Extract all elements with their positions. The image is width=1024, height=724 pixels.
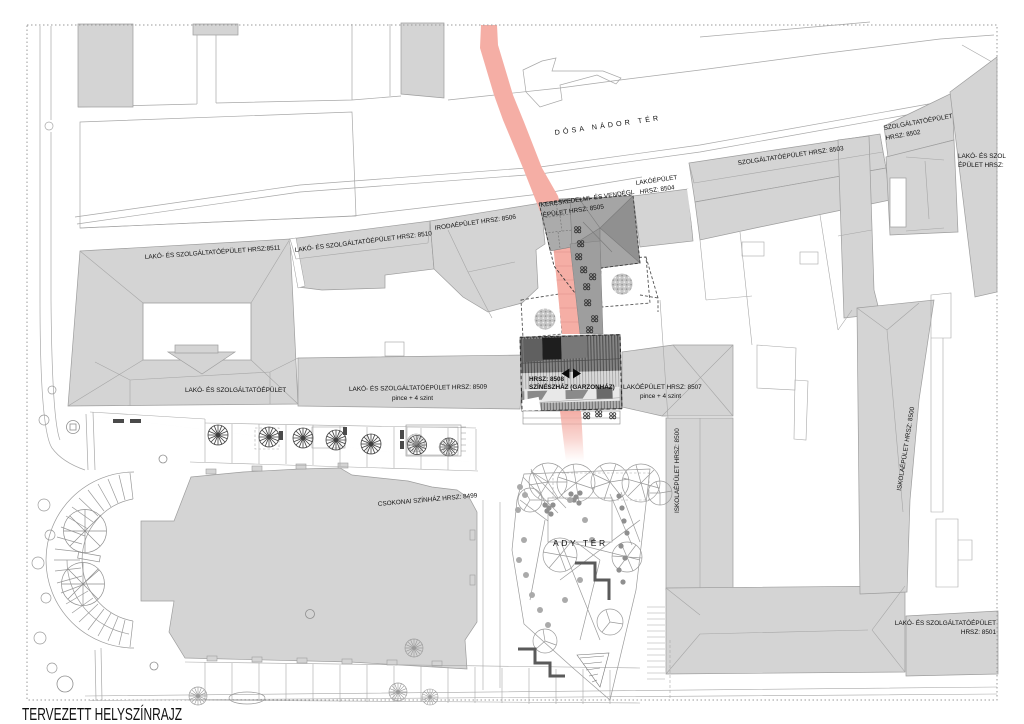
svg-text:LAKÓ- ÉS SZOLGÁLTATÓÉPÜLET: LAKÓ- ÉS SZOLGÁLTATÓÉPÜLET — [895, 618, 996, 627]
svg-text:HRSZ: 8501: HRSZ: 8501 — [961, 629, 997, 636]
svg-text:TERVEZETT HELYSZÍNRAJZ: TERVEZETT HELYSZÍNRAJZ — [22, 704, 182, 724]
svg-text:pince + 4 szint: pince + 4 szint — [640, 393, 681, 400]
svg-text:SZÍNÉSZHÁZ (GARZONHÁZ): SZÍNÉSZHÁZ (GARZONHÁZ) — [529, 382, 615, 391]
svg-text:HRSZ: 8508: HRSZ: 8508 — [529, 376, 564, 383]
svg-text:pince + 4 szint: pince + 4 szint — [392, 395, 433, 402]
svg-text:LAKÓ- ÉS SZOLGÁLTATÓÉPÜLET: LAKÓ- ÉS SZOLGÁLTATÓÉPÜLET — [185, 385, 286, 394]
svg-text:LAKÓ- ÉS SZOL: LAKÓ- ÉS SZOL — [958, 151, 1006, 160]
svg-text:LAKÓÉPÜLET HRSZ: 8507: LAKÓÉPÜLET HRSZ: 8507 — [623, 382, 702, 391]
svg-text:ISKOLAÉPÜLET HRSZ: 8500: ISKOLAÉPÜLET HRSZ: 8500 — [672, 428, 681, 513]
svg-text:ADY TÉR: ADY TÉR — [553, 538, 608, 548]
